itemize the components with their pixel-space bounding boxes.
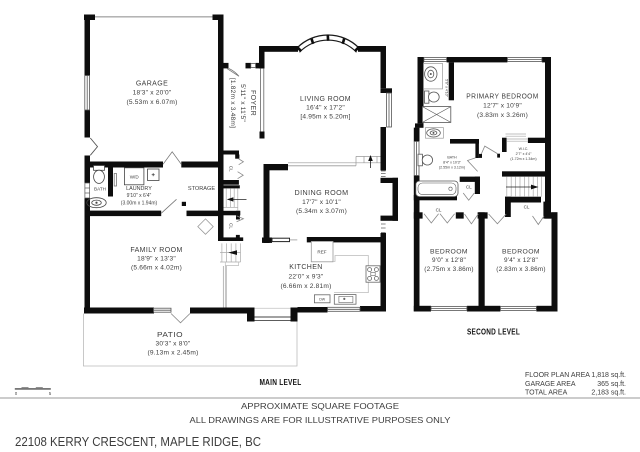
- svg-text:8'4" x 10'3": 8'4" x 10'3": [443, 160, 461, 164]
- svg-text:CL: CL: [436, 207, 442, 212]
- svg-text:22'0" x 9'3": 22'0" x 9'3": [289, 274, 324, 281]
- svg-text:(2.55m x 3.12m): (2.55m x 3.12m): [439, 165, 465, 169]
- svg-text:1,818 sq.ft.: 1,818 sq.ft.: [591, 372, 626, 379]
- svg-text:PATIO: PATIO: [157, 332, 183, 339]
- svg-text:FOYER: FOYER: [249, 90, 256, 116]
- svg-text:W/D: W/D: [130, 175, 140, 180]
- svg-text:ALL DRAWINGS ARE FOR ILLUSTRAT: ALL DRAWINGS ARE FOR ILLUSTRATIVE PURPOS…: [190, 415, 451, 425]
- svg-text:LAUNDRY: LAUNDRY: [126, 186, 152, 192]
- svg-text:PRIMARY BEDROOM: PRIMARY BEDROOM: [466, 93, 539, 100]
- svg-text:BATH: BATH: [447, 155, 457, 159]
- svg-text:5'11" x 11'5": 5'11" x 11'5": [239, 84, 246, 122]
- svg-text:(3.00m x 1.94m): (3.00m x 1.94m): [121, 200, 158, 206]
- svg-text:BEDROOM: BEDROOM: [430, 248, 468, 255]
- svg-text:365 sq.ft.: 365 sq.ft.: [597, 381, 626, 388]
- svg-text:9'0" x 12'8": 9'0" x 12'8": [432, 257, 466, 264]
- svg-text:[4.95m x 5.20m]: [4.95m x 5.20m]: [300, 114, 350, 121]
- svg-text:(2.83m x 3.86m): (2.83m x 3.86m): [496, 266, 546, 273]
- svg-text:30'3" x 8'0": 30'3" x 8'0": [156, 340, 191, 347]
- svg-text:DW: DW: [319, 298, 326, 302]
- svg-text:FLOOR PLAN AREA: FLOOR PLAN AREA: [525, 372, 590, 379]
- svg-text:18'9" x 13'3": 18'9" x 13'3": [137, 255, 176, 262]
- svg-text:2,183 sq.ft.: 2,183 sq.ft.: [591, 390, 626, 397]
- svg-text:22108 KERRY CRESCENT, MAPLE RI: 22108 KERRY CRESCENT, MAPLE RIDGE, BC: [15, 434, 261, 449]
- svg-text:APPROXIMATE SQUARE FOOTAGE: APPROXIMATE SQUARE FOOTAGE: [241, 401, 399, 411]
- svg-text:(5.34m x 3.07m): (5.34m x 3.07m): [296, 208, 347, 215]
- svg-text:GARAGE: GARAGE: [136, 81, 168, 88]
- svg-text:5'6" x 4'10": 5'6" x 4'10": [444, 79, 448, 97]
- svg-text:CL: CL: [466, 184, 472, 189]
- svg-text:(6.66m x 2.81m): (6.66m x 2.81m): [280, 283, 331, 290]
- svg-text:CL: CL: [228, 223, 233, 229]
- svg-text:[1.82m x 3.48m]: [1.82m x 3.48m]: [229, 78, 236, 128]
- svg-text:DINING ROOM: DINING ROOM: [295, 190, 349, 197]
- svg-text:CL: CL: [228, 166, 233, 172]
- svg-text:SECOND LEVEL: SECOND LEVEL: [467, 328, 520, 337]
- svg-text:GARAGE AREA: GARAGE AREA: [525, 381, 576, 388]
- svg-text:(2.75m x 3.86m): (2.75m x 3.86m): [424, 266, 474, 273]
- svg-text:REF: REF: [317, 250, 326, 255]
- svg-text:TOTAL AREA: TOTAL AREA: [525, 390, 568, 397]
- svg-text:BEDROOM: BEDROOM: [502, 248, 540, 255]
- svg-text:BATH: BATH: [94, 187, 106, 192]
- svg-text:LIVING ROOM: LIVING ROOM: [300, 96, 351, 103]
- svg-text:17'7" x 10'1": 17'7" x 10'1": [302, 199, 341, 206]
- svg-text:18'3" x 20'0": 18'3" x 20'0": [133, 90, 172, 97]
- svg-text:(5.53m x 6.07m): (5.53m x 6.07m): [126, 99, 177, 106]
- svg-text:(3.83m x 3.26m): (3.83m x 3.26m): [477, 112, 528, 119]
- svg-text:9'4" x 12'8": 9'4" x 12'8": [504, 257, 538, 264]
- svg-text:KITCHEN: KITCHEN: [289, 264, 323, 271]
- svg-text:W.I.C.: W.I.C.: [519, 147, 529, 151]
- svg-text:12'7" x 10'9": 12'7" x 10'9": [483, 103, 522, 110]
- svg-text:9'10" x 6'4": 9'10" x 6'4": [127, 193, 152, 199]
- svg-text:16'4" x 17'2": 16'4" x 17'2": [306, 105, 345, 112]
- svg-text:FAMILY ROOM: FAMILY ROOM: [130, 247, 182, 254]
- svg-text:(9.13m x 2.45m): (9.13m x 2.45m): [147, 350, 198, 357]
- svg-text:MAIN LEVEL: MAIN LEVEL: [260, 378, 302, 387]
- svg-text:CL: CL: [524, 204, 530, 209]
- svg-text:(1.72m x 1.34m): (1.72m x 1.34m): [510, 157, 536, 161]
- svg-text:2'7" x 4'4": 2'7" x 4'4": [516, 152, 532, 156]
- svg-text:(5.66m x 4.02m): (5.66m x 4.02m): [131, 265, 182, 272]
- svg-text:STORAGE: STORAGE: [188, 186, 216, 192]
